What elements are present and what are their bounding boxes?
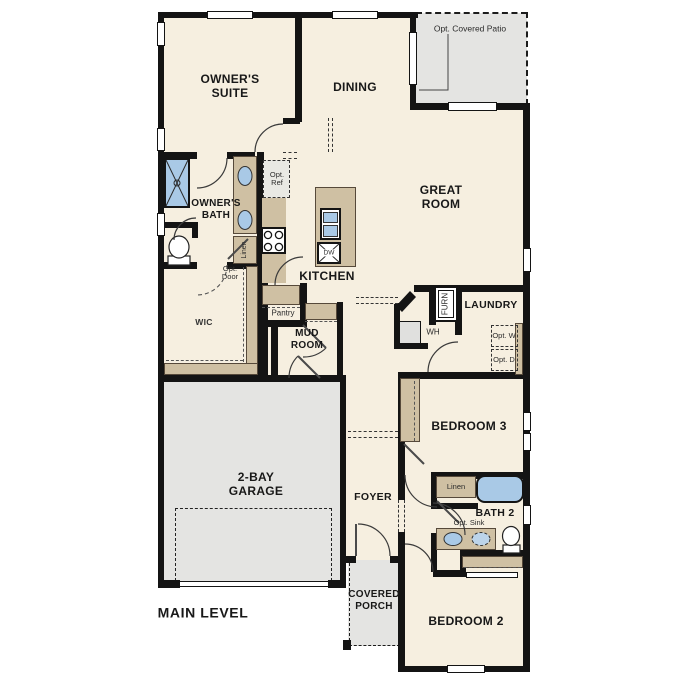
label-bedroom-3: BEDROOM 3 [424,419,514,433]
window-bath-left [157,213,165,236]
label-opt-door: Opt. Door [216,265,244,282]
wall-toilet-nook-stub [192,222,198,238]
window-dining-top [332,11,378,19]
stove [261,227,286,254]
mudroom-bench [305,303,337,320]
wall-bedroom2-top-stub [398,570,405,577]
wall-pantry-bottom [256,320,307,327]
label-dining: DINING [315,80,395,94]
wic-rod-right [243,267,244,362]
bath2-vanity [436,528,496,550]
opening-dining-hall [328,118,333,152]
patio-dashed-right [526,12,528,105]
wall-garage-top [158,375,346,382]
wall-hall-stub-top [398,472,405,479]
bench-dash [305,321,337,322]
label-main-level: MAIN LEVEL [148,605,258,622]
wall-suite-right [295,12,302,122]
wall-garage-right [340,378,346,586]
wall-right [523,103,530,672]
water-heater [399,321,421,344]
label-bedroom-2: BEDROOM 2 [419,614,514,628]
window-greatroom-right [523,248,531,272]
floor-foyer [346,378,400,560]
window-bedroom3-a [523,412,531,431]
garage-pad-dashed [175,508,332,586]
label-owners-suite: OWNER'S SUITE [192,72,268,100]
sink-basin-2 [323,225,338,237]
wic-shelf-bottom [164,363,258,375]
pantry-shelf [262,285,300,305]
bedroom2-closet-rod [464,567,521,568]
window-suite-top [207,11,253,19]
label-pantry: Pantry [263,310,303,319]
label-covered-porch: COVERED PORCH [343,589,405,613]
wall-mud-east [337,302,343,378]
kitchen-counter-lower [262,254,286,283]
label-kitchen: KITCHEN [287,269,367,283]
label-opt-ref: Opt. Ref [265,171,289,188]
wall-foyer-bottom-left [340,556,356,563]
window-greatroom-slider [448,102,497,111]
window-bedroom2-bottom [447,665,485,673]
label-wh: WH [422,329,444,338]
wic-shelf-right [246,266,258,366]
window-left-2 [157,128,165,151]
label-linen-bath2: Linen [441,483,471,491]
label-foyer: FOYER [348,491,398,503]
label-opt-d: Opt. D [492,356,516,364]
window-suite-left [157,22,165,46]
opening-greatroom-hall [356,297,398,304]
label-garage: 2-BAY GARAGE [226,470,286,498]
porch-corner-post [343,640,351,650]
wall-wic-top-left [164,262,197,269]
bedroom3-closet [400,378,420,442]
opening-suite-hall [283,152,297,159]
bedroom3-closet-rod [414,381,415,441]
label-dw: DW [320,249,338,256]
label-opt-sink: Opt. Sink [447,519,491,527]
label-opt-w: Opt. W [492,332,516,340]
floor-plan: OWNER'S SUITE DINING GREAT ROOM KITCHEN … [0,0,687,687]
label-opt-patio: Opt. Covered Patio [420,24,520,33]
patio-dashed-top [416,12,527,14]
wall-bedroom2-top [433,570,462,577]
bedroom2-closet-door [466,572,518,578]
owners-bath-vanity [233,156,257,234]
kitchen-counter-upper [262,198,286,227]
label-linen-owners: Linen [241,235,249,265]
label-great-room: GREAT ROOM [410,183,472,211]
sink-basin-1 [323,212,338,223]
wic-rod-bottom [166,360,243,361]
label-laundry: LAUNDRY [456,299,526,311]
wall-foyer-bottom-right [390,556,402,563]
opening-foyer-top [348,431,398,438]
wall-top [158,12,418,18]
label-owners-bath: OWNER'S BATH [187,198,245,222]
label-furn: FURN [442,288,451,320]
garage-door-panel [179,581,329,587]
wall-left [158,12,164,586]
opening-foyer-hall [398,500,405,532]
wall-garage-bottom-left [158,580,180,588]
window-dining-patio [409,32,417,85]
label-mud-room: MUD ROOM [284,328,330,352]
window-bedroom3-b [523,433,531,451]
porch-dashed-bottom [349,645,400,646]
label-wic: WIC [184,317,224,327]
wall-mud-west [271,320,278,378]
bathtub [476,475,524,503]
